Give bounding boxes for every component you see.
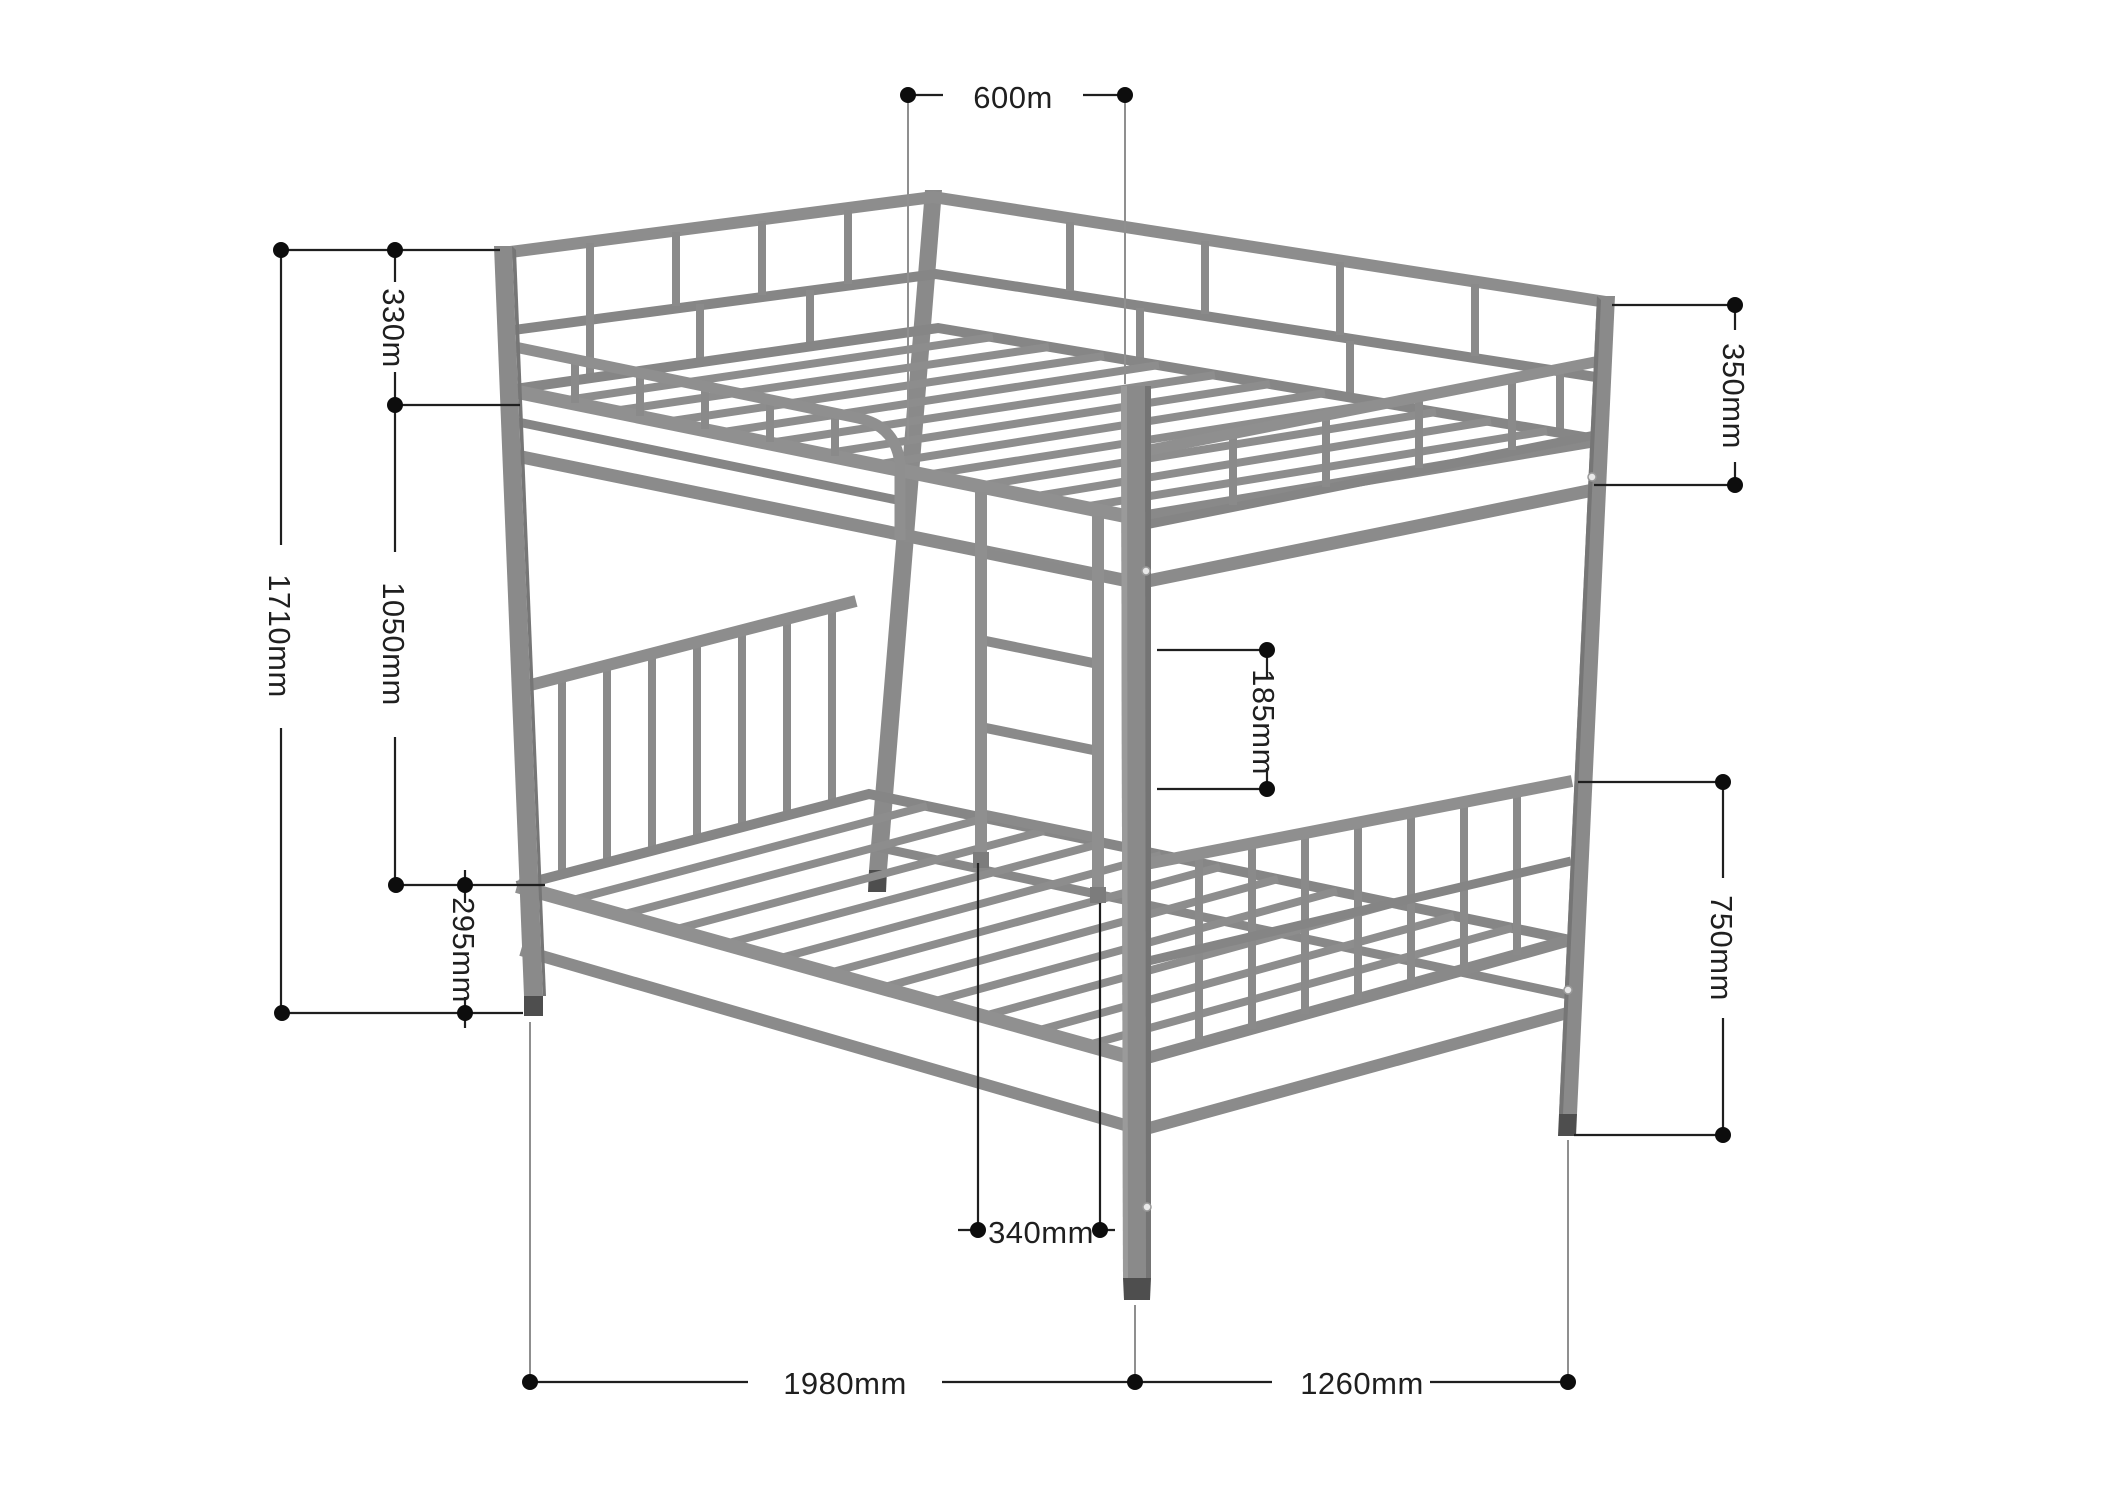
rivets bbox=[1142, 473, 1596, 1211]
bed-post-left bbox=[494, 246, 546, 1016]
lower-headboard bbox=[515, 601, 856, 872]
dim-label-bed-length: 1980mm bbox=[783, 1366, 907, 1401]
ladder-foot-right bbox=[1090, 887, 1106, 903]
dim-label-overall-height: 1710mm bbox=[262, 574, 297, 698]
dim-label-upper-rail-height: 350mm bbox=[1716, 343, 1751, 449]
dim-label-top-opening: 600m bbox=[973, 80, 1053, 115]
bed-foot-front bbox=[1123, 1278, 1151, 1300]
bed-post-front bbox=[1121, 386, 1151, 1300]
bed-post-right bbox=[1558, 296, 1615, 1136]
dim-label-footboard-height: 750mm bbox=[1704, 895, 1739, 1001]
lower-headboard-top-rail bbox=[515, 601, 856, 689]
dim-label-rail-gap: 185mm bbox=[1246, 669, 1281, 775]
lower-headboard-balusters bbox=[562, 609, 832, 872]
bunk-bed-drawing bbox=[494, 190, 1615, 1300]
diagram-canvas: 600m 330m 1710mm 1050mm 295mm 185mm 350m… bbox=[0, 0, 2102, 1500]
bunk-bed-dimension-diagram: 600m 330m 1710mm 1050mm 295mm 185mm 350m… bbox=[0, 0, 2102, 1500]
bed-foot-right bbox=[1558, 1114, 1577, 1136]
dim-label-ladder-width: 340mm bbox=[988, 1215, 1094, 1250]
dim-label-guardrail-height: 330m bbox=[376, 288, 411, 368]
dim-label-bed-width: 1260mm bbox=[1300, 1366, 1424, 1401]
ladder-foot-left bbox=[973, 852, 989, 868]
bed-foot-left bbox=[524, 996, 543, 1016]
ladder-rungs bbox=[981, 553, 1098, 838]
dim-label-bunk-gap: 1050mm bbox=[376, 582, 411, 706]
dim-label-lower-platform-height: 295mm bbox=[446, 897, 481, 1003]
